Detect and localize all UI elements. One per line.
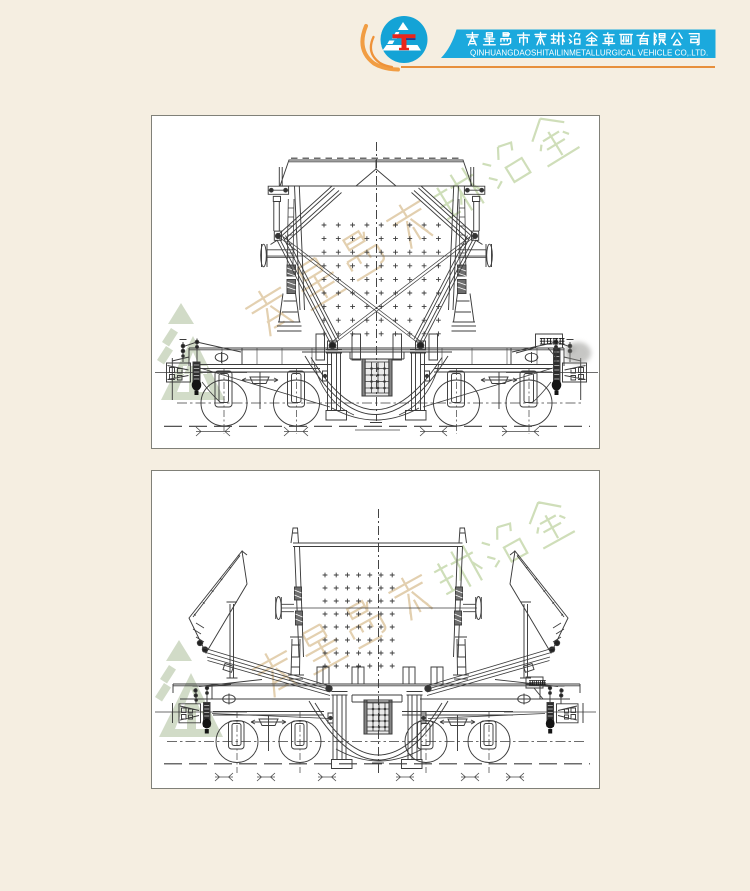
svg-text:QINHUANGDAOSHITAILINMETALLURGI: QINHUANGDAOSHITAILINMETALLURGICAL VEHICL… <box>470 49 708 58</box>
